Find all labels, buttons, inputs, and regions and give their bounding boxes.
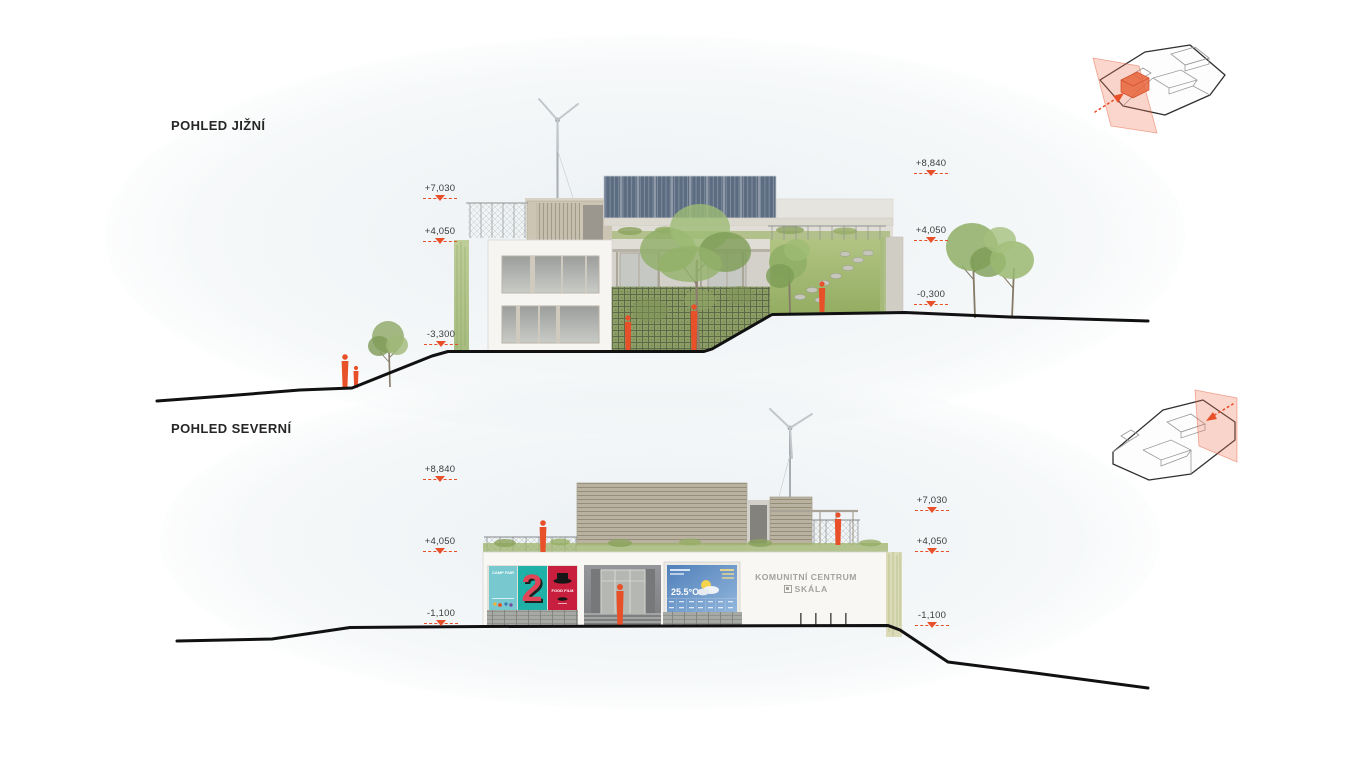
- sign-line1: KOMUNITNÍ CENTRUM: [751, 572, 861, 582]
- elevation-marker: +4,050: [899, 226, 963, 246]
- marker-label: +8,840: [916, 159, 947, 169]
- poster-food-film: FOOD FILM: [548, 566, 577, 610]
- elevation-marker: +8,840: [899, 159, 963, 179]
- south-elevation-title: POHLED JIŽNÍ: [171, 118, 265, 133]
- marker-label: +4,050: [425, 227, 456, 237]
- elevation-marker: +7,030: [408, 184, 472, 204]
- marker-label: +4,050: [425, 537, 456, 547]
- roof-pavilion: [525, 198, 615, 240]
- elevation-marker: +7,030: [900, 496, 964, 516]
- level-marker-icon: [423, 548, 457, 557]
- level-marker-icon: [914, 237, 948, 246]
- marker-label: +4,050: [917, 537, 948, 547]
- main-white-volume: [488, 240, 612, 352]
- poster-wall: CAMP FAIR 2 2 FOOD FILM: [487, 565, 578, 627]
- level-marker-icon: [423, 476, 457, 485]
- elevation-marker: +4,050: [408, 227, 472, 247]
- level-marker-icon: [424, 341, 458, 350]
- upper-wood-volume-right: [770, 497, 812, 545]
- elevation-sheet: CAMP FAIR 2 2 FOOD FILM: [0, 0, 1366, 768]
- svg-text:CAMP FAIR: CAMP FAIR: [492, 570, 514, 575]
- elevation-marker: -0,300: [899, 290, 963, 310]
- terrace-railing-left: [466, 203, 528, 238]
- strip-window-lower: [502, 306, 599, 343]
- level-marker-icon: [423, 238, 457, 247]
- strip-window-upper: [502, 256, 599, 293]
- keyplan-north: [1113, 390, 1237, 480]
- marker-label: +7,030: [425, 184, 456, 194]
- keyplan-south: [1093, 45, 1225, 133]
- marker-label: -0,300: [917, 290, 945, 300]
- marker-label: -1,100: [918, 611, 946, 621]
- marker-label: +4,050: [916, 226, 947, 236]
- elevation-marker: +4,050: [408, 537, 472, 557]
- elevation-marker: -3,300: [409, 330, 473, 350]
- sign-line2: SKÁLA: [794, 584, 828, 594]
- entrance-recess: [584, 565, 661, 627]
- upper-wood-volume: [577, 483, 747, 545]
- svg-text:2: 2: [521, 568, 542, 610]
- marker-label: -1,100: [427, 609, 455, 619]
- building-sign: KOMUNITNÍ CENTRUM SKÁLA: [751, 572, 861, 594]
- poster-number-2: 2 2: [518, 566, 547, 612]
- marker-label: -3,300: [427, 330, 455, 340]
- level-marker-icon: [915, 548, 949, 557]
- marker-label: +7,030: [917, 496, 948, 506]
- elevation-marker: -1,100: [409, 609, 473, 629]
- elevation-marker: -1,100: [900, 611, 964, 631]
- figure-trellis-2: [691, 304, 698, 350]
- elevation-marker: +4,050: [900, 537, 964, 557]
- level-marker-icon: [915, 507, 949, 516]
- marker-label: +8,840: [425, 465, 456, 475]
- info-screen: 25.5°C: [663, 562, 742, 627]
- level-marker-icon: [423, 195, 457, 204]
- svg-text:FOOD FILM: FOOD FILM: [552, 588, 575, 593]
- level-marker-icon: [914, 301, 948, 310]
- skala-logo-icon: [784, 585, 792, 593]
- level-marker-icon: [914, 170, 948, 179]
- glazed-link: [747, 500, 770, 545]
- poster-camp-fair: CAMP FAIR: [489, 566, 517, 610]
- level-marker-icon: [915, 622, 949, 631]
- north-elevation-title: POHLED SEVERNÍ: [171, 421, 291, 436]
- drawing-canvas: CAMP FAIR 2 2 FOOD FILM: [0, 0, 1366, 768]
- level-marker-icon: [424, 620, 458, 629]
- svg-text:25.5°C: 25.5°C: [671, 587, 699, 597]
- elevation-marker: +8,840: [408, 465, 472, 485]
